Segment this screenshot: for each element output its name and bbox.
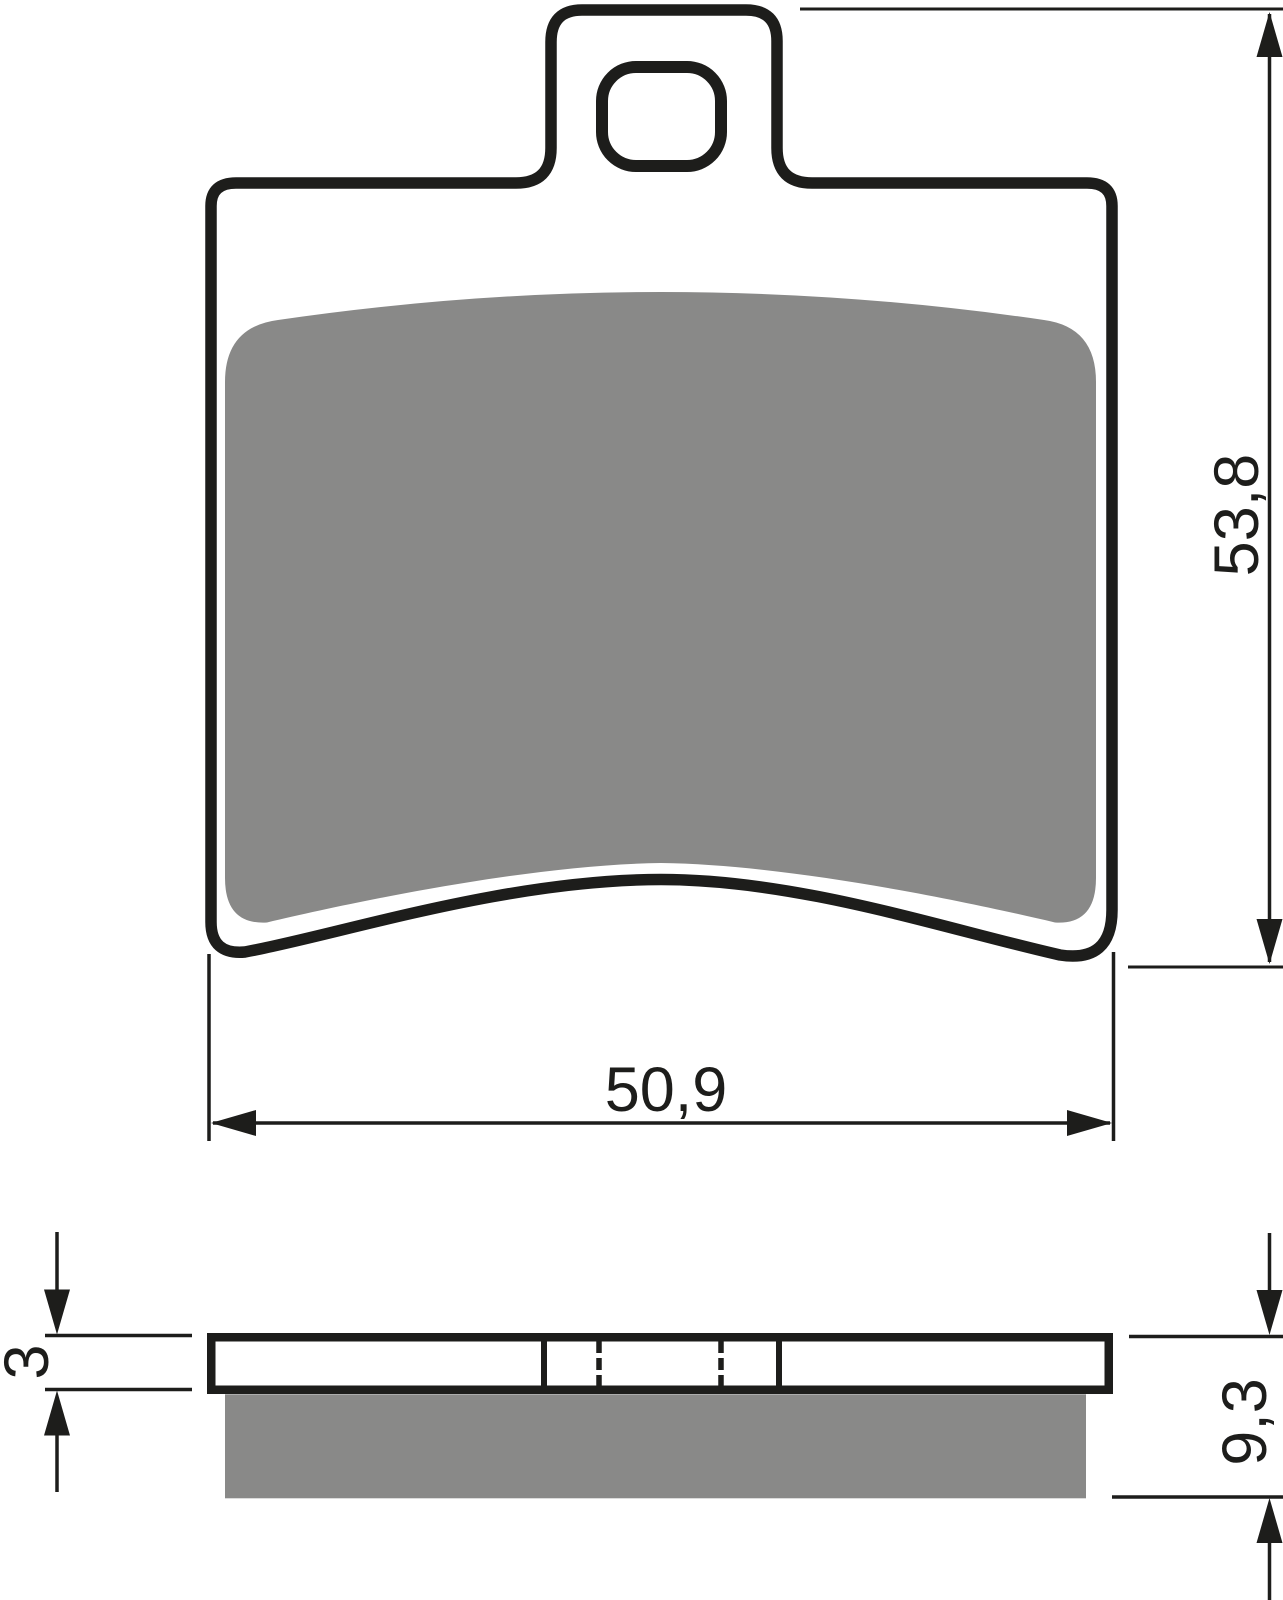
svg-text:53,8: 53,8	[1202, 454, 1272, 577]
svg-text:3: 3	[0, 1344, 62, 1379]
svg-text:50,9: 50,9	[605, 1055, 728, 1125]
svg-text:9,3: 9,3	[1210, 1378, 1280, 1466]
